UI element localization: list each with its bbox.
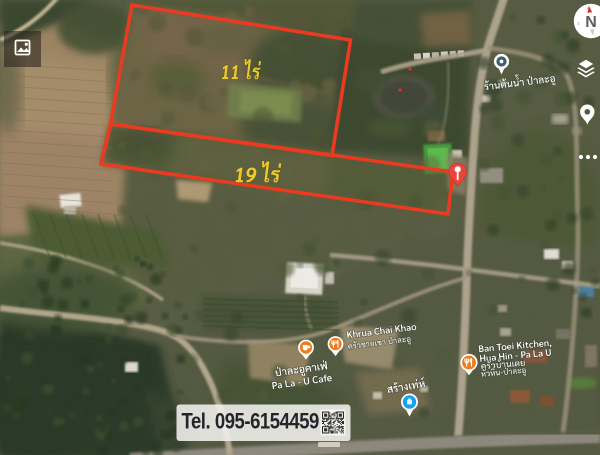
svg-text:Tel. 095-6154459: Tel. 095-6154459	[182, 410, 320, 434]
svg-text:N: N	[585, 14, 597, 31]
